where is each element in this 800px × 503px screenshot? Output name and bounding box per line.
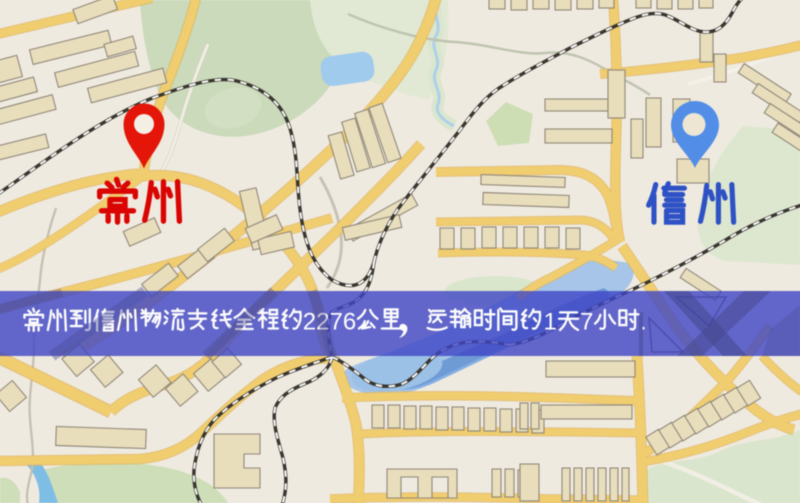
- svg-text:7: 7: [580, 309, 593, 336]
- svg-text:1: 1: [544, 309, 557, 336]
